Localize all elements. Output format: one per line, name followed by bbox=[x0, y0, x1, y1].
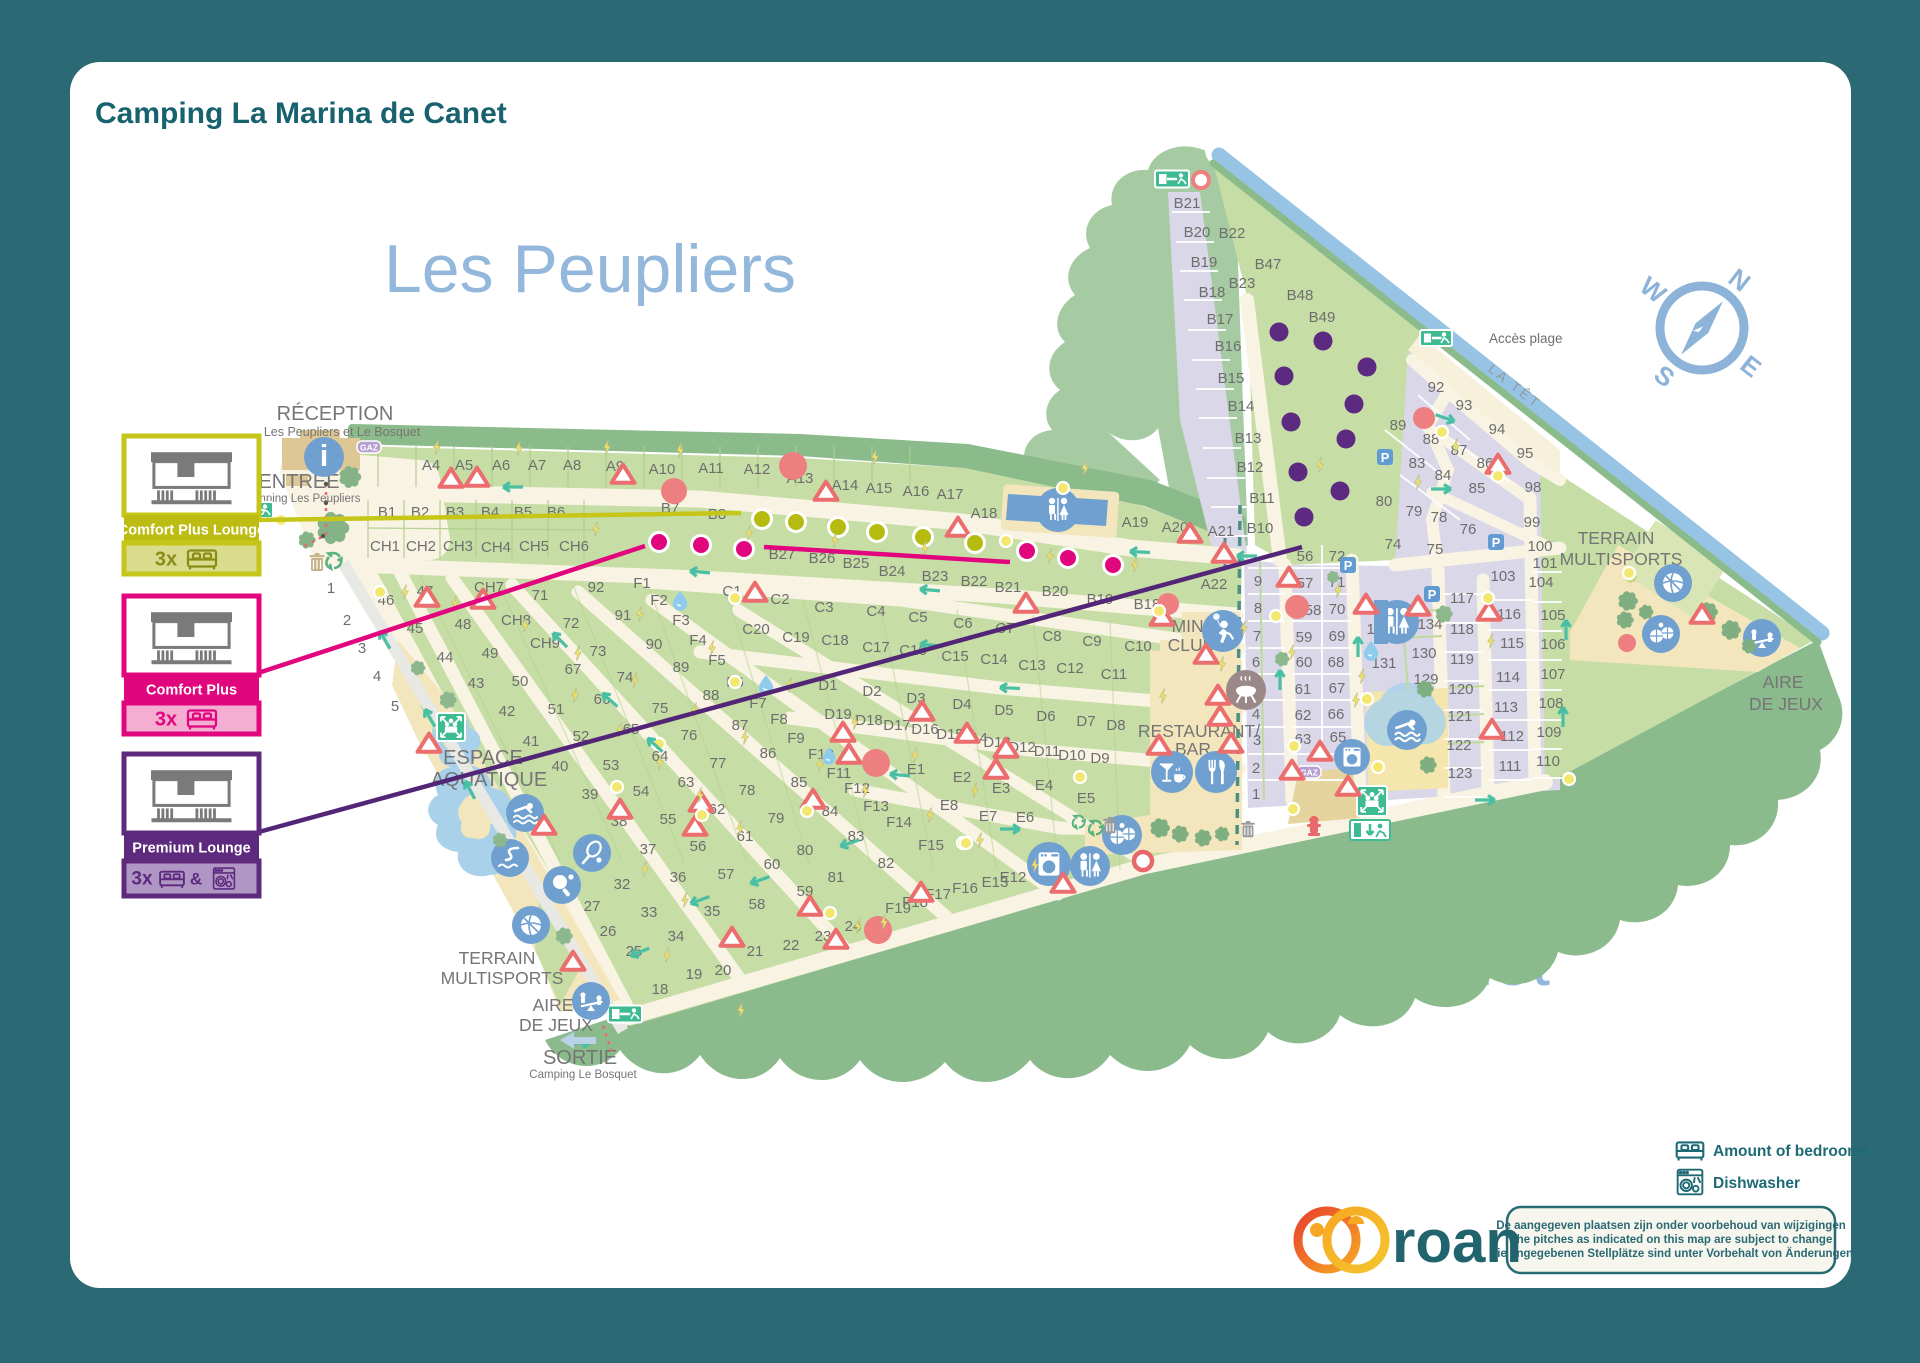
svg-text:118: 118 bbox=[1450, 621, 1474, 638]
svg-text:106: 106 bbox=[1540, 636, 1565, 653]
svg-text:32: 32 bbox=[614, 876, 631, 893]
svg-text:7: 7 bbox=[1253, 628, 1261, 645]
svg-text:A8: A8 bbox=[563, 457, 581, 474]
svg-text:19: 19 bbox=[686, 966, 703, 983]
svg-text:E6: E6 bbox=[1016, 809, 1034, 826]
svg-text:F14: F14 bbox=[886, 814, 912, 831]
svg-text:6: 6 bbox=[1252, 654, 1260, 671]
svg-text:122: 122 bbox=[1446, 737, 1471, 754]
svg-text:44: 44 bbox=[437, 649, 454, 666]
svg-text:GAZ: GAZ bbox=[360, 443, 378, 453]
svg-text:B10: B10 bbox=[1247, 520, 1274, 537]
svg-text:B18: B18 bbox=[1199, 284, 1226, 301]
svg-text:90: 90 bbox=[646, 636, 663, 653]
svg-text:85: 85 bbox=[791, 774, 808, 791]
svg-text:F2: F2 bbox=[650, 592, 668, 609]
svg-text:A6: A6 bbox=[492, 457, 510, 474]
svg-text:75: 75 bbox=[652, 700, 669, 717]
svg-text:105: 105 bbox=[1540, 607, 1565, 624]
svg-text:92: 92 bbox=[588, 579, 605, 596]
svg-text:B16: B16 bbox=[1215, 338, 1242, 355]
svg-text:E13: E13 bbox=[982, 874, 1009, 891]
svg-text:A4: A4 bbox=[422, 457, 440, 474]
svg-text:130: 130 bbox=[1411, 645, 1436, 662]
svg-text:78: 78 bbox=[1431, 509, 1448, 526]
svg-text:D9: D9 bbox=[1090, 750, 1109, 767]
svg-text:MULTISPORTS: MULTISPORTS bbox=[1560, 549, 1683, 569]
svg-text:Amount of bedrooms: Amount of bedrooms bbox=[1713, 1143, 1870, 1160]
svg-text:C11: C11 bbox=[1101, 666, 1127, 683]
svg-text:3x: 3x bbox=[131, 869, 153, 890]
svg-text:F4: F4 bbox=[689, 632, 707, 649]
svg-text:P: P bbox=[1428, 587, 1437, 602]
svg-text:A12: A12 bbox=[744, 461, 771, 478]
svg-text:B47: B47 bbox=[1255, 256, 1282, 273]
svg-text:B15: B15 bbox=[1218, 370, 1245, 387]
svg-text:CH4: CH4 bbox=[481, 539, 511, 556]
svg-text:A17: A17 bbox=[937, 486, 964, 503]
svg-text:79: 79 bbox=[1406, 503, 1423, 520]
svg-text:Accès plage: Accès plage bbox=[1489, 331, 1563, 346]
svg-text:De aangegeven plaatsen zijn on: De aangegeven plaatsen zijn onder voorbe… bbox=[1496, 1220, 1846, 1232]
svg-text:C8: C8 bbox=[1042, 628, 1061, 645]
svg-text:87: 87 bbox=[1451, 442, 1468, 459]
svg-text:P: P bbox=[1344, 558, 1353, 573]
svg-text:CH6: CH6 bbox=[559, 538, 589, 555]
svg-text:82: 82 bbox=[878, 855, 895, 872]
svg-text:3: 3 bbox=[358, 640, 366, 657]
svg-text:54: 54 bbox=[633, 783, 650, 800]
svg-text:Camping Le Bosquet: Camping Le Bosquet bbox=[529, 1069, 637, 1081]
svg-text:E3: E3 bbox=[992, 780, 1010, 797]
svg-text:36: 36 bbox=[670, 869, 687, 886]
svg-text:Les Peupliers et Le Bosquet: Les Peupliers et Le Bosquet bbox=[264, 425, 421, 439]
svg-text:76: 76 bbox=[681, 727, 698, 744]
svg-text:104: 104 bbox=[1528, 574, 1553, 591]
svg-text:B23: B23 bbox=[1229, 275, 1256, 292]
svg-text:92: 92 bbox=[1428, 379, 1445, 396]
svg-text:55: 55 bbox=[660, 811, 677, 828]
svg-text:D18: D18 bbox=[855, 712, 883, 729]
svg-text:B6: B6 bbox=[547, 504, 565, 521]
svg-text:A18: A18 bbox=[971, 505, 998, 522]
svg-text:D2: D2 bbox=[862, 683, 881, 700]
svg-text:C15: C15 bbox=[941, 648, 969, 665]
svg-text:DE JEUX: DE JEUX bbox=[519, 1015, 593, 1035]
svg-text:DE JEUX: DE JEUX bbox=[1749, 694, 1823, 714]
svg-text:E5: E5 bbox=[1077, 790, 1095, 807]
svg-text:E2: E2 bbox=[953, 769, 971, 786]
svg-text:111: 111 bbox=[1499, 758, 1522, 775]
svg-text:1: 1 bbox=[1252, 786, 1260, 803]
svg-text:F13: F13 bbox=[863, 798, 889, 815]
svg-text:B11: B11 bbox=[1249, 490, 1275, 507]
svg-text:C3: C3 bbox=[814, 599, 833, 616]
svg-text:roan: roan bbox=[1392, 1208, 1522, 1275]
svg-text:84: 84 bbox=[1435, 467, 1452, 484]
svg-text:8: 8 bbox=[1254, 600, 1262, 617]
svg-text:CH5: CH5 bbox=[519, 538, 549, 555]
svg-text:48: 48 bbox=[455, 616, 472, 633]
svg-text:88: 88 bbox=[703, 687, 720, 704]
svg-text:56: 56 bbox=[1297, 548, 1314, 565]
svg-text:98: 98 bbox=[1525, 479, 1542, 496]
svg-text:C20: C20 bbox=[742, 621, 770, 638]
svg-text:67: 67 bbox=[1329, 680, 1346, 697]
svg-text:D5: D5 bbox=[994, 702, 1013, 719]
svg-text:115: 115 bbox=[1500, 635, 1524, 652]
svg-text:70: 70 bbox=[1329, 601, 1346, 618]
svg-text:117: 117 bbox=[1450, 590, 1474, 607]
svg-text:9: 9 bbox=[1254, 573, 1262, 590]
svg-text:80: 80 bbox=[797, 842, 814, 859]
svg-text:D7: D7 bbox=[1076, 713, 1095, 730]
svg-text:A19: A19 bbox=[1122, 514, 1149, 531]
svg-text:69: 69 bbox=[1329, 628, 1346, 645]
svg-text:Les Peupliers: Les Peupliers bbox=[384, 231, 796, 307]
svg-text:P: P bbox=[1492, 535, 1501, 550]
svg-text:103: 103 bbox=[1490, 568, 1515, 585]
svg-text:22: 22 bbox=[783, 937, 800, 954]
svg-text:C5: C5 bbox=[908, 609, 927, 626]
svg-text:B48: B48 bbox=[1287, 287, 1314, 304]
svg-text:ESPACE: ESPACE bbox=[443, 747, 523, 769]
svg-text:SORTIE: SORTIE bbox=[543, 1047, 617, 1069]
svg-text:AIRE: AIRE bbox=[533, 995, 574, 1015]
svg-text:100: 100 bbox=[1527, 538, 1552, 555]
svg-text:B12: B12 bbox=[1237, 459, 1264, 476]
svg-text:D19: D19 bbox=[824, 706, 852, 723]
svg-text:74: 74 bbox=[617, 669, 634, 686]
svg-text:63: 63 bbox=[678, 774, 695, 791]
svg-text:B21: B21 bbox=[995, 579, 1022, 596]
svg-text:A7: A7 bbox=[528, 457, 546, 474]
svg-text:TERRAIN: TERRAIN bbox=[1578, 528, 1655, 548]
svg-text:C12: C12 bbox=[1056, 660, 1084, 677]
svg-text:74: 74 bbox=[1385, 536, 1402, 553]
svg-text:A16: A16 bbox=[903, 483, 930, 500]
svg-text:i: i bbox=[320, 438, 329, 473]
svg-text:33: 33 bbox=[641, 904, 658, 921]
svg-text:D4: D4 bbox=[952, 696, 971, 713]
svg-text:80: 80 bbox=[1376, 493, 1393, 510]
svg-text:42: 42 bbox=[499, 703, 516, 720]
svg-text:C14: C14 bbox=[980, 651, 1008, 668]
svg-text:43: 43 bbox=[468, 675, 485, 692]
svg-text:CH3: CH3 bbox=[443, 538, 473, 555]
svg-text:21: 21 bbox=[747, 943, 764, 960]
svg-text:F19: F19 bbox=[885, 900, 911, 917]
svg-text:Comfort Plus: Comfort Plus bbox=[146, 683, 237, 699]
svg-text:D8: D8 bbox=[1106, 717, 1125, 734]
svg-text:113: 113 bbox=[1494, 699, 1518, 716]
svg-text:E4: E4 bbox=[1035, 777, 1053, 794]
svg-text:F15: F15 bbox=[918, 837, 944, 854]
svg-text:76: 76 bbox=[1460, 521, 1477, 538]
svg-text:40: 40 bbox=[552, 758, 569, 775]
svg-text:72: 72 bbox=[563, 615, 580, 632]
svg-text:83: 83 bbox=[1409, 455, 1426, 472]
svg-text:119: 119 bbox=[1450, 651, 1474, 668]
svg-text:3x: 3x bbox=[155, 709, 177, 731]
svg-text:61: 61 bbox=[1295, 681, 1312, 698]
svg-text:B24: B24 bbox=[879, 563, 906, 580]
svg-text:A10: A10 bbox=[649, 461, 676, 478]
svg-text:60: 60 bbox=[764, 856, 781, 873]
svg-text:A5: A5 bbox=[455, 457, 473, 474]
svg-text:Camping La Marina de Canet: Camping La Marina de Canet bbox=[95, 97, 507, 130]
svg-text:B22: B22 bbox=[961, 573, 988, 590]
svg-text:34: 34 bbox=[668, 928, 685, 945]
svg-text:AIRE: AIRE bbox=[1763, 672, 1804, 692]
svg-text:Dishwasher: Dishwasher bbox=[1713, 1175, 1800, 1192]
svg-text:C13: C13 bbox=[1018, 657, 1046, 674]
svg-text:C18: C18 bbox=[821, 632, 849, 649]
svg-text:107: 107 bbox=[1540, 666, 1565, 683]
svg-text:B13: B13 bbox=[1235, 430, 1262, 447]
svg-text:57: 57 bbox=[718, 866, 735, 883]
svg-text:C4: C4 bbox=[866, 603, 885, 620]
svg-text:B14: B14 bbox=[1228, 398, 1255, 415]
svg-text:39: 39 bbox=[582, 786, 599, 803]
svg-text:78: 78 bbox=[739, 782, 756, 799]
svg-text:93: 93 bbox=[1456, 397, 1473, 414]
svg-text:85: 85 bbox=[1469, 480, 1486, 497]
svg-text:F8: F8 bbox=[770, 711, 788, 728]
svg-text:120: 120 bbox=[1448, 681, 1473, 698]
svg-text:C10: C10 bbox=[1124, 638, 1152, 655]
svg-text:P: P bbox=[1381, 450, 1390, 465]
svg-text:1: 1 bbox=[327, 580, 335, 597]
svg-text:86: 86 bbox=[760, 745, 777, 762]
svg-text:D6: D6 bbox=[1036, 708, 1055, 725]
svg-text:20: 20 bbox=[715, 962, 732, 979]
svg-text:101: 101 bbox=[1532, 555, 1557, 572]
svg-text:89: 89 bbox=[673, 659, 690, 676]
svg-text:C19: C19 bbox=[782, 629, 810, 646]
svg-text:B20: B20 bbox=[1184, 224, 1211, 241]
svg-text:4: 4 bbox=[373, 668, 381, 685]
svg-text:D16: D16 bbox=[911, 721, 939, 738]
svg-text:TERRAIN: TERRAIN bbox=[459, 948, 536, 968]
svg-text:The pitches as indicated on th: The pitches as indicated on this map are… bbox=[1510, 1234, 1833, 1246]
svg-text:66: 66 bbox=[1328, 706, 1345, 723]
svg-text:37: 37 bbox=[640, 841, 657, 858]
svg-text:2: 2 bbox=[343, 612, 351, 629]
svg-text:E7: E7 bbox=[979, 808, 997, 825]
svg-text:CH1: CH1 bbox=[370, 538, 400, 555]
svg-text:F1: F1 bbox=[633, 575, 651, 592]
svg-text:5: 5 bbox=[391, 698, 399, 715]
svg-text:50: 50 bbox=[512, 673, 529, 690]
svg-text:D10: D10 bbox=[1058, 747, 1086, 764]
svg-text:95: 95 bbox=[1517, 445, 1534, 462]
svg-text:Premium Lounge: Premium Lounge bbox=[132, 841, 250, 857]
svg-text:18: 18 bbox=[652, 981, 669, 998]
svg-text:C6: C6 bbox=[953, 615, 972, 632]
svg-text:49: 49 bbox=[482, 645, 499, 662]
svg-text:123: 123 bbox=[1447, 765, 1472, 782]
svg-text:62: 62 bbox=[1295, 707, 1312, 724]
svg-text:CH2: CH2 bbox=[406, 538, 436, 555]
svg-text:41: 41 bbox=[523, 733, 540, 750]
svg-text:MULTISPORTS: MULTISPORTS bbox=[441, 968, 564, 988]
svg-text:D11: D11 bbox=[1034, 743, 1060, 760]
svg-text:3x: 3x bbox=[155, 549, 177, 571]
svg-text:89: 89 bbox=[1390, 417, 1407, 434]
svg-text:B23: B23 bbox=[922, 568, 949, 585]
svg-text:68: 68 bbox=[1328, 654, 1345, 671]
svg-text:27: 27 bbox=[584, 898, 601, 915]
svg-text:A15: A15 bbox=[866, 480, 893, 497]
svg-text:26: 26 bbox=[600, 923, 617, 940]
svg-text:E8: E8 bbox=[940, 797, 958, 814]
svg-text:58: 58 bbox=[749, 896, 766, 913]
svg-text:C17: C17 bbox=[862, 639, 890, 656]
svg-text:B19: B19 bbox=[1191, 254, 1218, 271]
svg-text:D17: D17 bbox=[883, 717, 911, 734]
svg-text:Die angegebenen Stellplätze si: Die angegebenen Stellplätze sind unter V… bbox=[1489, 1247, 1853, 1260]
svg-text:99: 99 bbox=[1524, 514, 1541, 531]
svg-text:&: & bbox=[190, 870, 202, 889]
svg-text:73: 73 bbox=[590, 643, 607, 660]
svg-text:60: 60 bbox=[1296, 654, 1313, 671]
svg-text:51: 51 bbox=[548, 701, 565, 718]
svg-text:94: 94 bbox=[1489, 421, 1506, 438]
svg-text:67: 67 bbox=[565, 661, 582, 678]
svg-text:56: 56 bbox=[690, 838, 707, 855]
svg-text:A14: A14 bbox=[832, 477, 859, 494]
svg-text:81: 81 bbox=[828, 869, 845, 886]
svg-text:114: 114 bbox=[1496, 669, 1520, 686]
svg-text:110: 110 bbox=[1536, 753, 1560, 770]
svg-text:121: 121 bbox=[1447, 708, 1472, 725]
svg-text:F16: F16 bbox=[952, 880, 978, 897]
svg-text:Comfort Plus Lounge: Comfort Plus Lounge bbox=[118, 523, 265, 539]
svg-text:109: 109 bbox=[1536, 724, 1561, 741]
svg-text:B21: B21 bbox=[1174, 195, 1201, 212]
svg-text:77: 77 bbox=[710, 755, 727, 772]
svg-text:75: 75 bbox=[1427, 541, 1444, 558]
svg-text:79: 79 bbox=[768, 810, 785, 827]
svg-text:F3: F3 bbox=[672, 612, 690, 629]
svg-text:B22: B22 bbox=[1219, 225, 1246, 242]
svg-text:B20: B20 bbox=[1042, 583, 1069, 600]
svg-text:C2: C2 bbox=[770, 591, 789, 608]
svg-text:A22: A22 bbox=[1201, 576, 1228, 593]
svg-text:F9: F9 bbox=[787, 730, 805, 747]
svg-text:35: 35 bbox=[704, 903, 721, 920]
svg-text:2: 2 bbox=[1252, 760, 1260, 777]
svg-text:71: 71 bbox=[532, 587, 549, 604]
svg-text:A11: A11 bbox=[698, 460, 724, 477]
svg-text:RÉCEPTION: RÉCEPTION bbox=[277, 402, 394, 425]
svg-text:B25: B25 bbox=[843, 555, 870, 572]
svg-text:A21: A21 bbox=[1208, 523, 1235, 540]
svg-text:B49: B49 bbox=[1309, 309, 1336, 326]
svg-text:53: 53 bbox=[603, 757, 620, 774]
svg-text:B17: B17 bbox=[1207, 311, 1234, 328]
svg-text:91: 91 bbox=[615, 607, 632, 624]
svg-text:C9: C9 bbox=[1082, 633, 1101, 650]
svg-text:59: 59 bbox=[1296, 629, 1313, 646]
